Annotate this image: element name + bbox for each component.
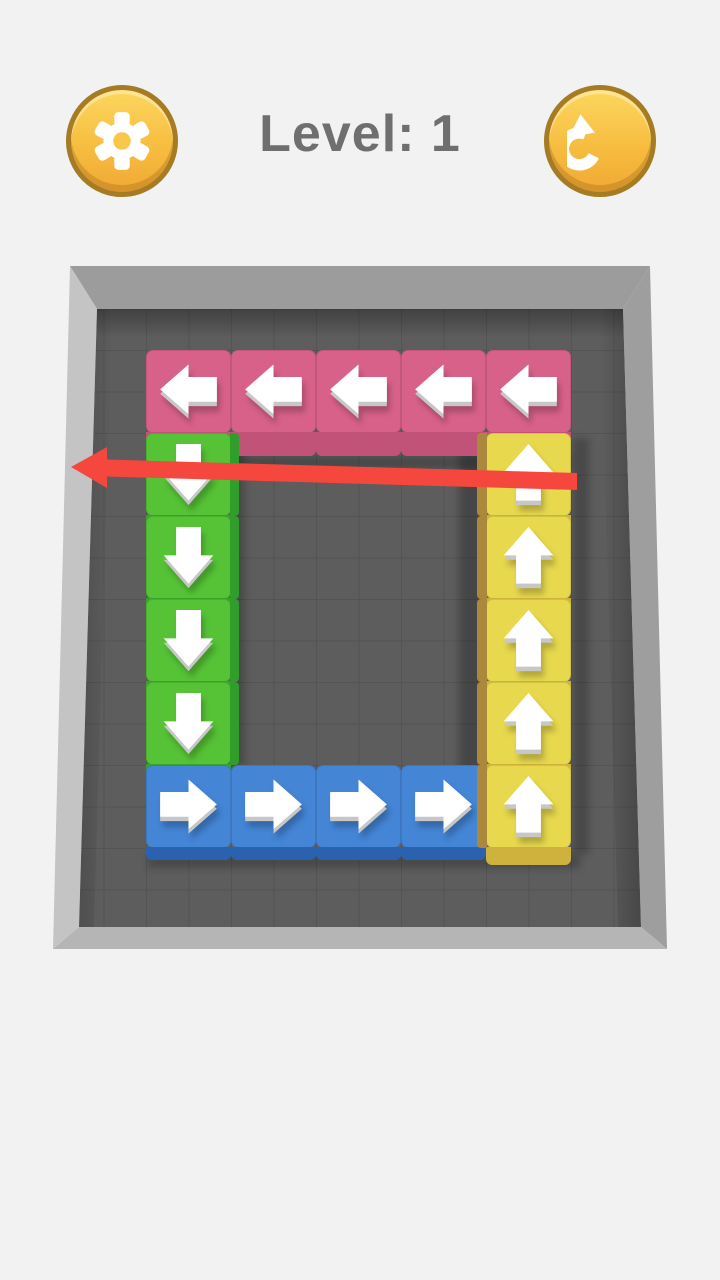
block-blue-right[interactable] (146, 765, 231, 848)
up-arrow-icon (500, 693, 557, 755)
block-front-face (316, 847, 401, 860)
right-arrow-icon (245, 776, 302, 838)
left-arrow-icon (245, 361, 302, 423)
block-front-face (146, 847, 231, 860)
block-yellow-up[interactable] (486, 765, 571, 848)
up-arrow-icon (500, 527, 557, 589)
left-arrow-icon (415, 361, 472, 423)
block-side-face (477, 516, 487, 599)
block-green-down[interactable] (146, 433, 231, 516)
left-arrow-icon (330, 361, 387, 423)
block-side-face (230, 433, 239, 516)
block-yellow-up[interactable] (486, 516, 571, 599)
block-side-face (477, 682, 487, 765)
block-front-face (401, 847, 486, 860)
block-green-down[interactable] (146, 516, 231, 599)
right-arrow-icon (160, 776, 217, 838)
up-arrow-icon (500, 444, 557, 506)
block-front-face (231, 847, 316, 860)
block-yellow-up[interactable] (486, 682, 571, 765)
block-side-face (477, 599, 487, 682)
block-side-face (230, 682, 239, 765)
block-pink-left[interactable] (231, 350, 316, 433)
block-front-face (401, 432, 486, 456)
down-arrow-icon (160, 610, 217, 672)
up-arrow-icon (500, 776, 557, 838)
block-blue-right[interactable] (231, 765, 316, 848)
block-blue-right[interactable] (316, 765, 401, 848)
block-side-face (477, 765, 487, 848)
block-blue-right[interactable] (401, 765, 486, 848)
game-screen: Level: 1 (0, 0, 720, 1280)
block-green-down[interactable] (146, 682, 231, 765)
restart-rotate-icon (567, 108, 633, 174)
down-arrow-icon (160, 444, 217, 506)
right-arrow-icon (415, 776, 472, 838)
down-arrow-icon (160, 527, 217, 589)
block-pink-left[interactable] (146, 350, 231, 433)
top-bar: Level: 1 (0, 0, 720, 220)
block-side-face (477, 433, 487, 516)
block-pink-left[interactable] (401, 350, 486, 433)
up-arrow-icon (500, 610, 557, 672)
block-front-face (231, 432, 316, 456)
block-pink-left[interactable] (316, 350, 401, 433)
block-side-face (230, 516, 239, 599)
right-arrow-icon (330, 776, 387, 838)
block-yellow-up[interactable] (486, 599, 571, 682)
block-yellow-up[interactable] (486, 433, 571, 516)
block-front-face (486, 847, 571, 865)
block-side-face (230, 599, 239, 682)
left-arrow-icon (160, 361, 217, 423)
block-pink-left[interactable] (486, 350, 571, 433)
down-arrow-icon (160, 693, 217, 755)
restart-button[interactable] (544, 85, 656, 197)
block-green-down[interactable] (146, 599, 231, 682)
block-front-face (316, 432, 401, 456)
left-arrow-icon (500, 361, 557, 423)
